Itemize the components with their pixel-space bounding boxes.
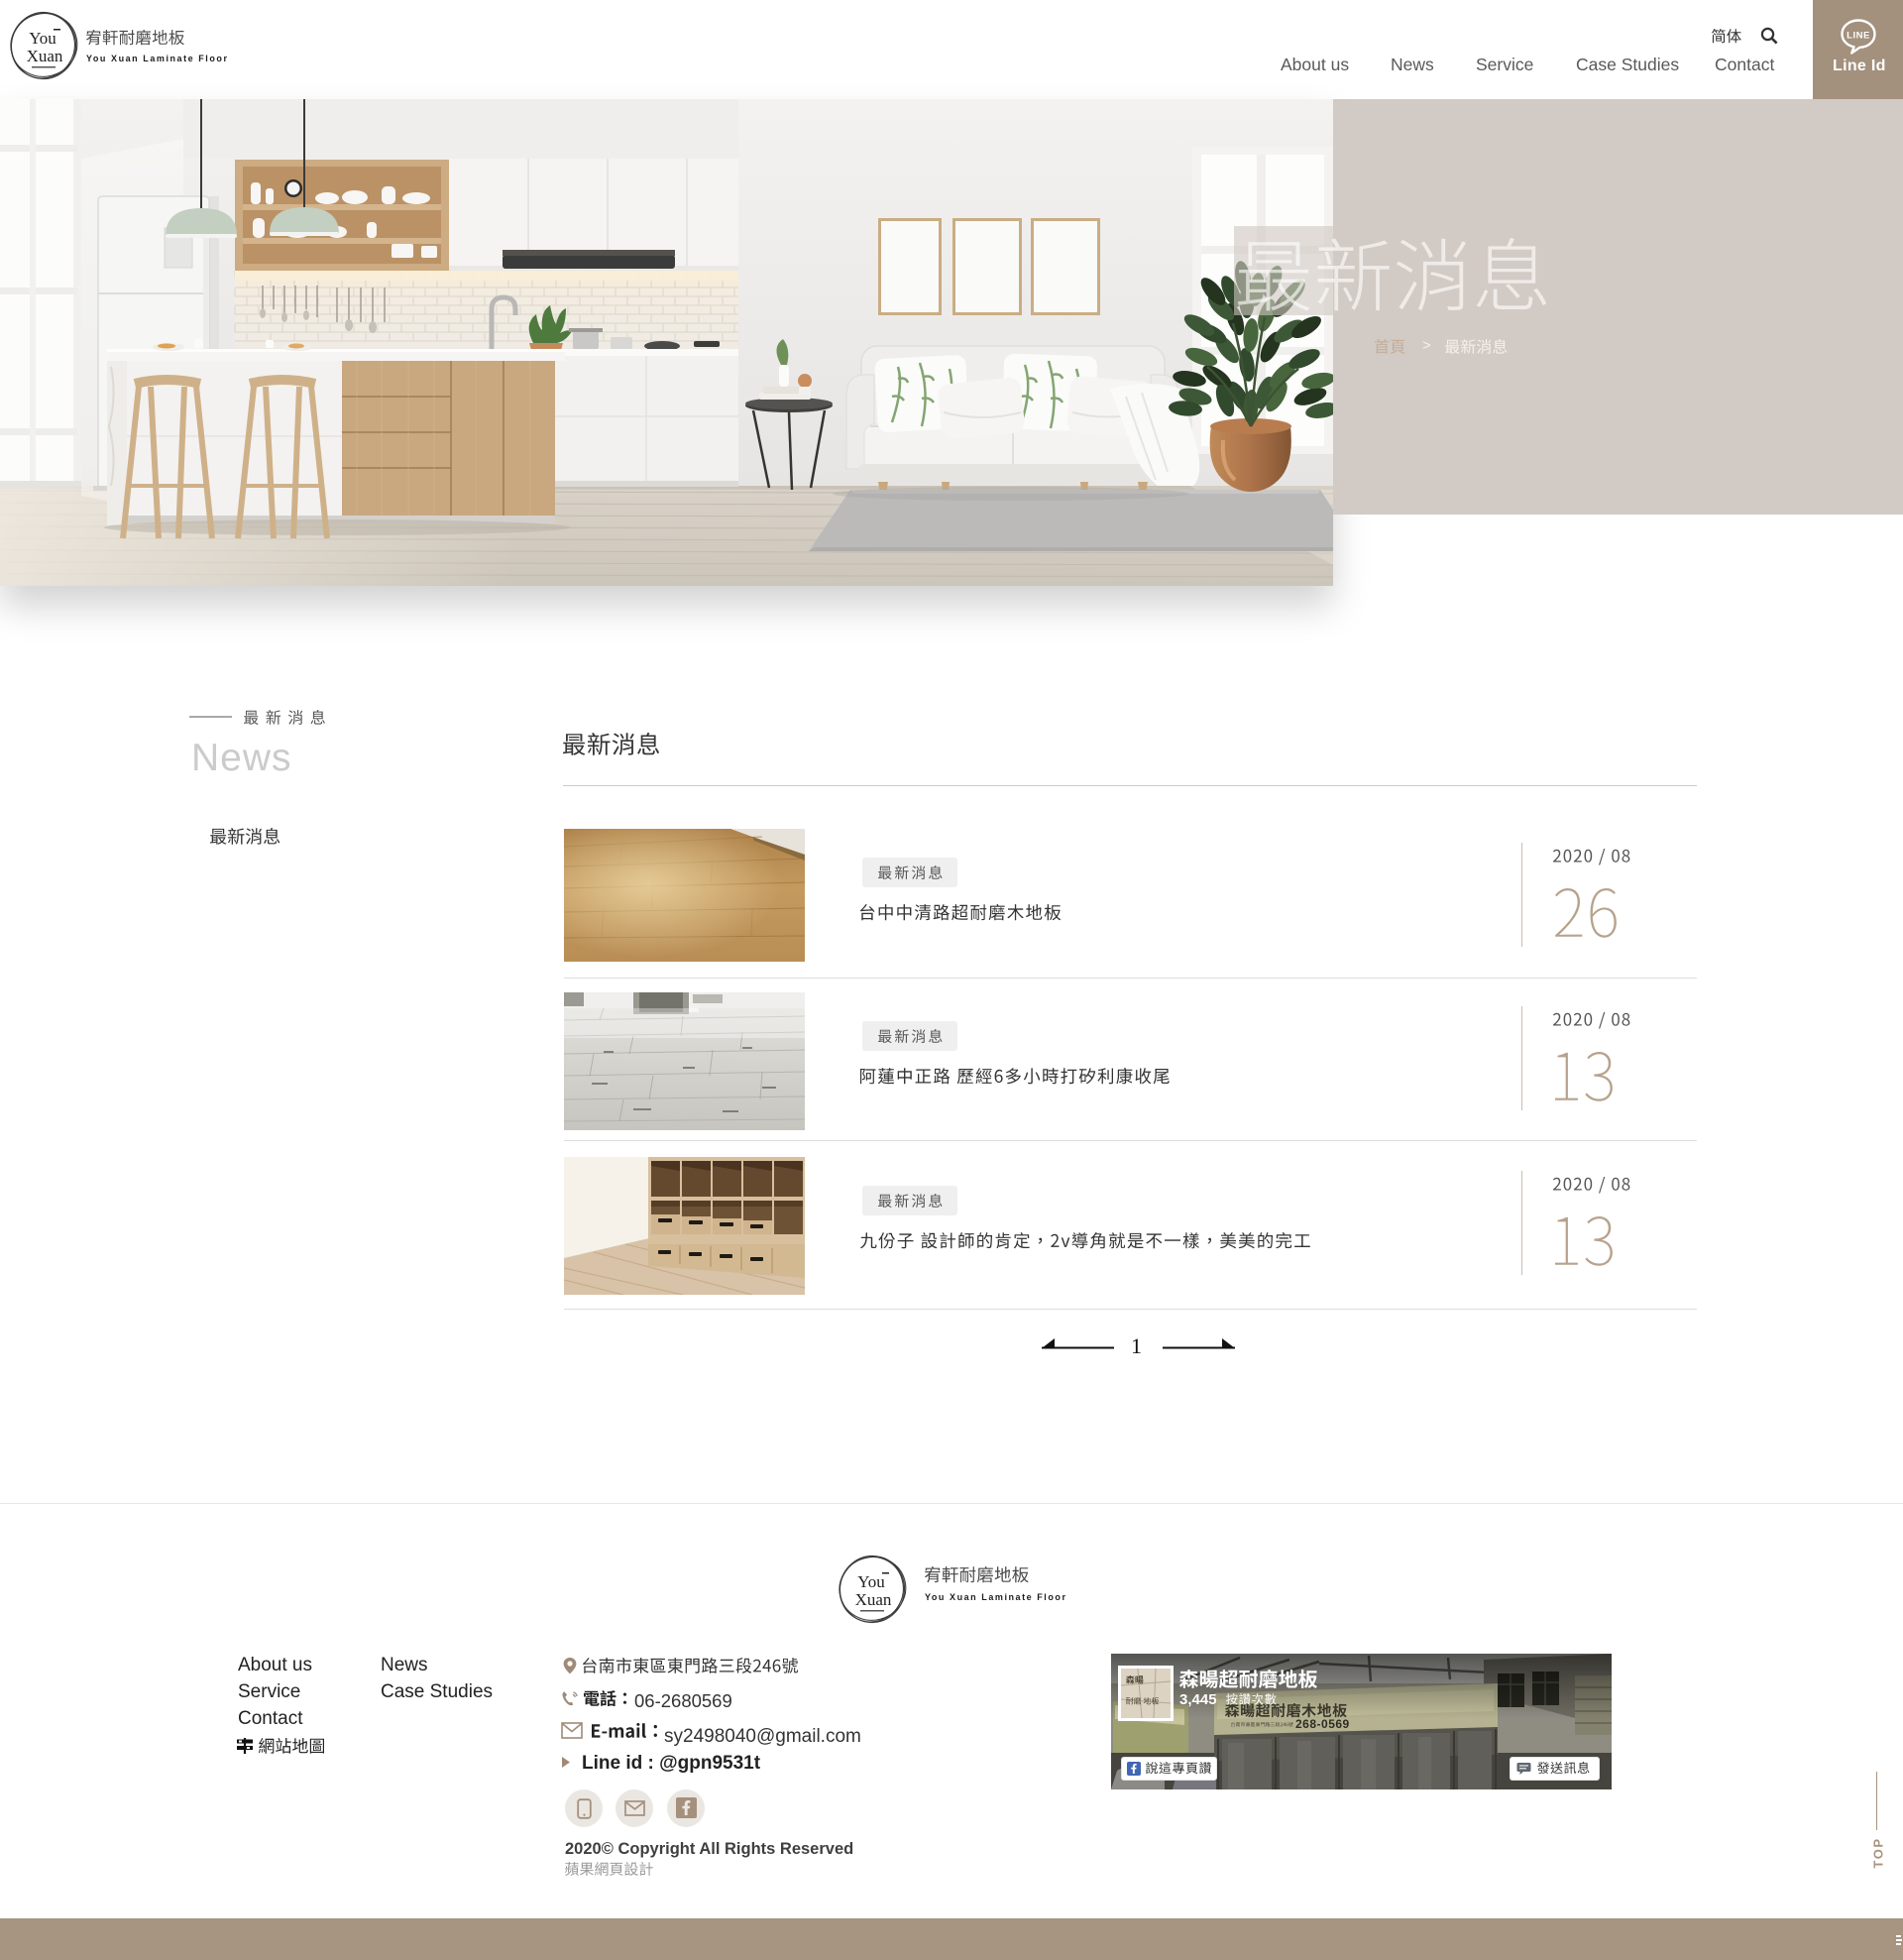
- svg-text:Xuan: Xuan: [27, 47, 63, 65]
- svg-text:Xuan: Xuan: [855, 1590, 892, 1609]
- svg-text:You: You: [857, 1572, 885, 1591]
- svg-text:LINE: LINE: [1847, 31, 1870, 42]
- svg-text:You: You: [29, 29, 56, 48]
- svg-text:TOP: TOP: [1871, 1838, 1886, 1869]
